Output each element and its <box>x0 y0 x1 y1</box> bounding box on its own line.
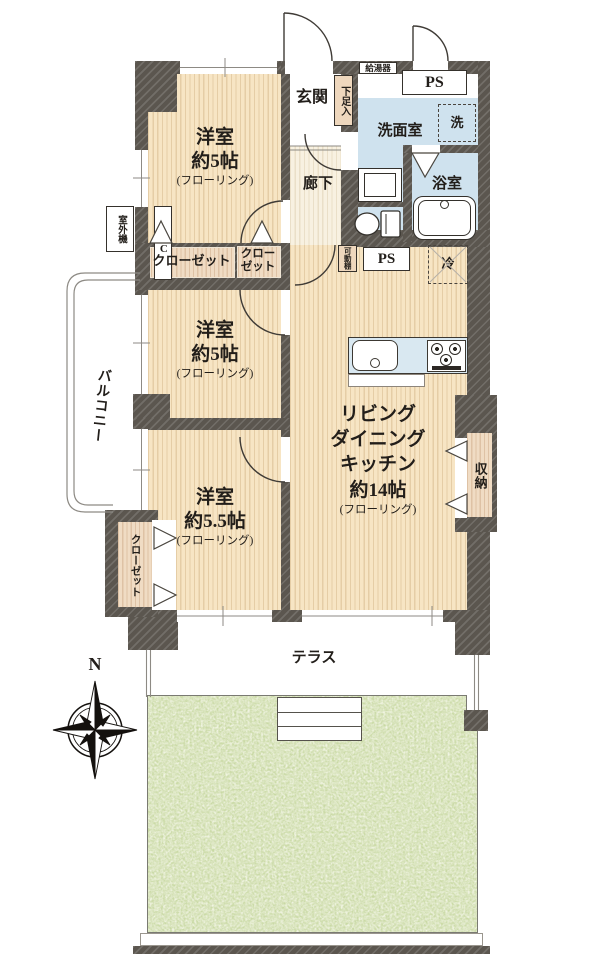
terrace-fence-lines <box>147 650 479 710</box>
linework-overlay <box>0 0 615 960</box>
fridge-diagonals <box>430 247 466 282</box>
toilet <box>355 211 400 237</box>
compass-rose <box>53 681 137 779</box>
window-lines <box>133 58 443 626</box>
balcony-outline <box>67 273 140 512</box>
floor-plan: 洗 冷 PS PS 給湯器 下足入 可動棚 AC 室外機 洋室 約5帖 (フロー… <box>0 0 615 960</box>
folding-door-markers <box>150 153 467 606</box>
door-arcs <box>240 13 448 482</box>
